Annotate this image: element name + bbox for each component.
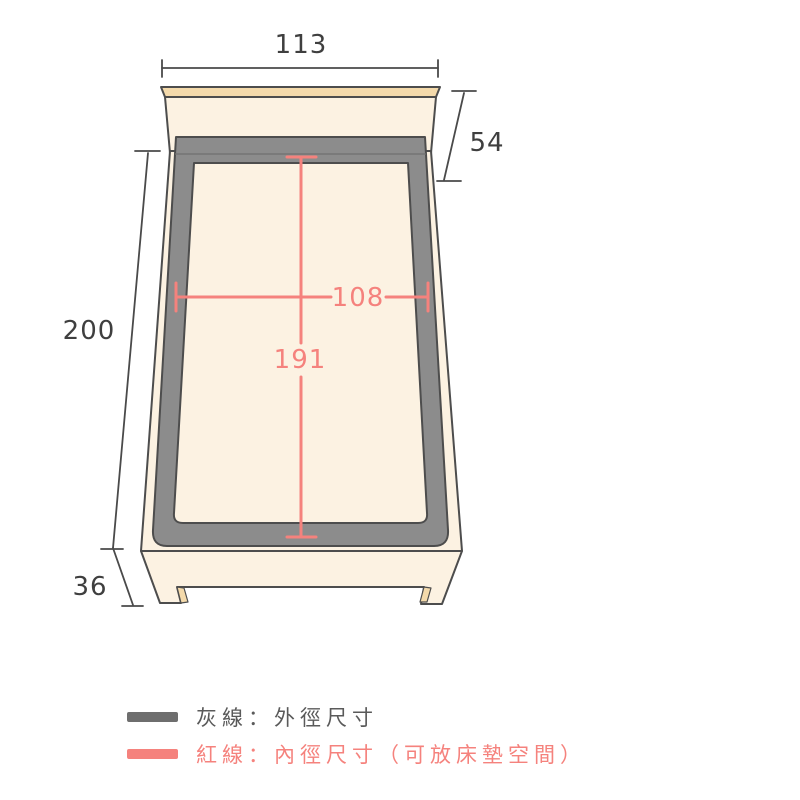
legend: 灰線：外徑尺寸 紅線：內徑尺寸（可放床墊空間）: [127, 706, 586, 767]
footboard-face: [141, 551, 462, 604]
headboard-top-edge: [161, 87, 440, 97]
gray-line-swatch: [127, 712, 178, 722]
outer-length-line: [113, 153, 148, 548]
footboard-height-label: 36: [72, 572, 107, 602]
dimension-footboard-height: 36: [72, 548, 143, 606]
dimension-outer-width: 113: [162, 30, 438, 77]
bed-dimension-diagram: 113 54 200 36: [0, 0, 800, 800]
bed-dimension-diagram-page: 113 54 200 36: [0, 0, 800, 800]
headboard-height-label: 54: [469, 128, 504, 158]
footboard-height-line: [113, 548, 133, 605]
dimension-headboard-height: 54: [437, 91, 505, 181]
headboard-height-line: [444, 93, 464, 180]
gray-line-label: 灰線：外徑尺寸: [196, 706, 378, 730]
outer-width-label: 113: [275, 30, 328, 60]
inner-length-label: 191: [274, 345, 327, 375]
inner-width-label: 108: [332, 283, 385, 313]
legend-item-gray: 灰線：外徑尺寸: [127, 706, 378, 730]
red-line-swatch: [127, 749, 178, 759]
red-line-label: 紅線：內徑尺寸（可放床墊空間）: [196, 743, 586, 767]
footboard: [141, 551, 462, 604]
legend-item-red: 紅線：內徑尺寸（可放床墊空間）: [127, 743, 586, 767]
outer-length-label: 200: [63, 316, 116, 346]
